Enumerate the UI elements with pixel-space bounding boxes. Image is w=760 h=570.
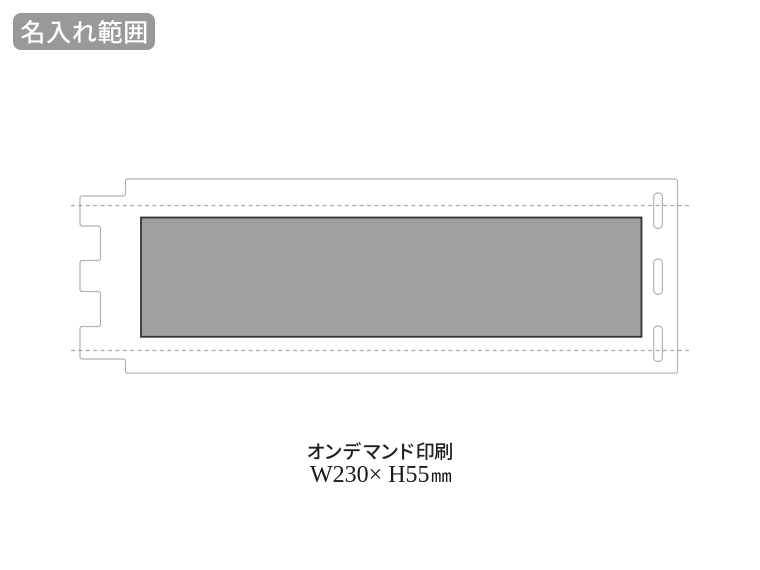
svg-text:W230× H55: W230× H55 [310, 462, 430, 488]
